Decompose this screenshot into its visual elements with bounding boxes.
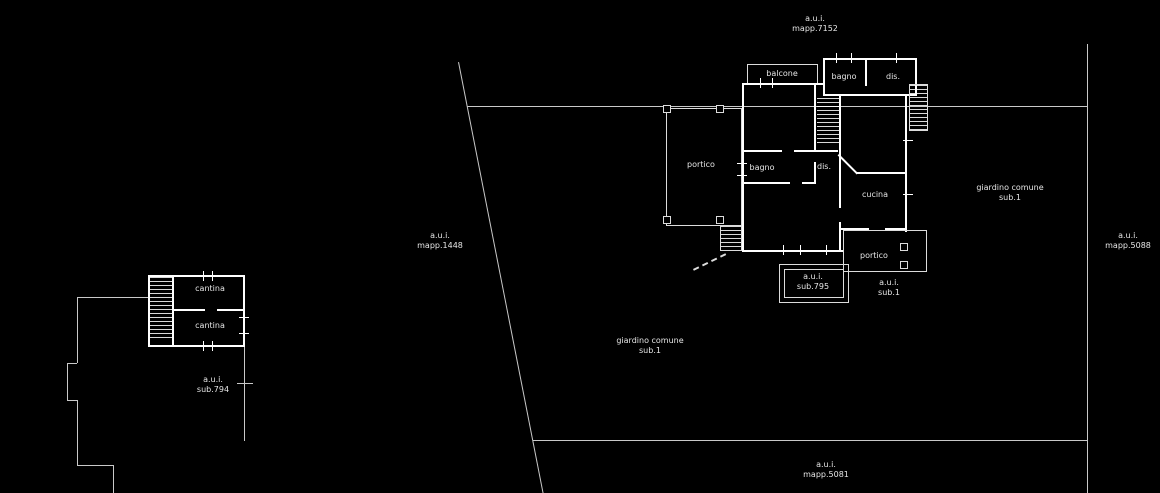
bagno-wall-top-b: [794, 150, 816, 152]
room-label-cantina-north: cantina: [195, 284, 225, 294]
label-line: mapp.7152: [792, 24, 838, 34]
parcel-label-left: a.u.i. mapp.1448: [417, 231, 463, 252]
boundary-tick: [237, 383, 253, 384]
window-tick: [836, 53, 837, 63]
sub-1-label: a.u.i. sub.1: [878, 278, 900, 299]
left-parcel-west-line-b: [77, 400, 78, 465]
room-label-portico-south: portico: [860, 251, 888, 261]
label-line: a.u.i.: [417, 231, 463, 241]
parcel-boundary-diagonal: [458, 62, 544, 493]
label-line: mapp.5088: [1105, 241, 1151, 251]
cantina-partition-a: [174, 309, 205, 311]
window-tick: [203, 341, 204, 351]
internal-staircase: [817, 98, 839, 146]
left-parcel-top-line: [77, 297, 148, 298]
external-staircase-east: [909, 84, 928, 131]
room-label-balcone: balcone: [766, 69, 798, 79]
left-parcel-bottom-line: [77, 465, 113, 466]
upper-block-partition: [865, 60, 867, 86]
left-building-stair-wall: [172, 277, 174, 345]
window-tick: [903, 140, 913, 141]
label-line: giardino comune: [616, 336, 683, 346]
room-label-bagno-upper: bagno: [831, 72, 856, 82]
room-label-cucina: cucina: [862, 190, 888, 200]
room-label-cantina-south: cantina: [195, 321, 225, 331]
sub-794-label: a.u.i. sub.794: [197, 375, 229, 396]
hall-wall-top: [816, 150, 838, 152]
window-tick: [737, 175, 747, 176]
left-parcel-south-line: [113, 465, 114, 493]
left-parcel-notch-top: [67, 363, 77, 364]
left-parcel-east-line: [244, 347, 245, 441]
label-line: sub.1: [976, 193, 1043, 203]
main-wall-east: [905, 94, 907, 232]
label-line: mapp.1448: [417, 241, 463, 251]
cantina-partition-b: [217, 309, 244, 311]
label-line: a.u.i.: [797, 272, 829, 282]
label-line: mapp.5081: [803, 470, 849, 480]
bagno-wall-east: [814, 162, 816, 182]
left-parcel-west-line-a: [77, 297, 78, 363]
label-line: a.u.i.: [878, 278, 900, 288]
room-label-dis-upper: dis.: [886, 72, 900, 82]
label-line: sub.795: [797, 282, 829, 292]
cucina-wall-west-b: [839, 222, 841, 252]
cucina-wall-north: [856, 172, 907, 174]
main-wall-south: [742, 250, 843, 252]
interior-wall-upper: [814, 85, 816, 151]
external-staircase-south: [720, 225, 742, 251]
garden-label-bottom: giardino comune sub.1: [616, 336, 683, 357]
window-tick: [212, 341, 213, 351]
main-wall-north: [742, 83, 825, 85]
portico-pillar: [716, 105, 724, 113]
left-building-staircase: [150, 277, 172, 341]
label-line: sub.1: [878, 288, 900, 298]
portico-pillar: [900, 261, 908, 269]
label-line: a.u.i.: [1105, 231, 1151, 241]
window-tick: [783, 245, 784, 255]
bagno-wall-top-a: [744, 150, 782, 152]
window-tick: [851, 53, 852, 63]
parcel-label-bottom: a.u.i. mapp.5081: [803, 460, 849, 481]
label-line: sub.794: [197, 385, 229, 395]
room-label-bagno-main: bagno: [749, 163, 774, 173]
window-tick: [239, 317, 249, 318]
window-tick: [896, 53, 897, 63]
sub-795-label: a.u.i. sub.795: [797, 272, 829, 293]
parcel-label-top: a.u.i. mapp.7152: [792, 14, 838, 35]
cucina-wall-west-a: [839, 96, 841, 208]
left-parcel-notch-bottom: [67, 400, 77, 401]
room-label-dis-main: dis.: [817, 162, 831, 172]
label-line: a.u.i.: [803, 460, 849, 470]
window-tick: [903, 194, 913, 195]
window-tick: [239, 333, 249, 334]
portico-pillar: [663, 105, 671, 113]
window-tick: [772, 78, 773, 88]
portico-pillar: [663, 216, 671, 224]
label-line: giardino comune: [976, 183, 1043, 193]
window-tick: [760, 78, 761, 88]
window-tick: [203, 271, 204, 281]
left-parcel-notch-west: [67, 363, 68, 400]
garden-label-right: giardino comune sub.1: [976, 183, 1043, 204]
portico-pillar: [716, 216, 724, 224]
portico-pillar: [900, 243, 908, 251]
main-wall-west: [742, 83, 744, 252]
parcel-boundary-right: [1087, 44, 1088, 493]
room-label-portico-west: portico: [687, 160, 715, 170]
label-line: a.u.i.: [792, 14, 838, 24]
bagno-wall-bottom-a: [744, 182, 790, 184]
parcel-boundary-top: [467, 106, 1087, 107]
window-tick: [737, 163, 747, 164]
bagno-wall-bottom-b: [802, 182, 816, 184]
label-line: sub.1: [616, 346, 683, 356]
window-tick: [800, 245, 801, 255]
floor-plan-canvas: balcone bagno dis. portico bagno dis. cu…: [0, 0, 1160, 493]
parcel-label-right: a.u.i. mapp.5088: [1105, 231, 1151, 252]
ramp-hatch-mark: [693, 253, 726, 271]
label-line: a.u.i.: [197, 375, 229, 385]
window-tick: [212, 271, 213, 281]
parcel-boundary-bottom: [533, 440, 1087, 441]
window-tick: [826, 245, 827, 255]
